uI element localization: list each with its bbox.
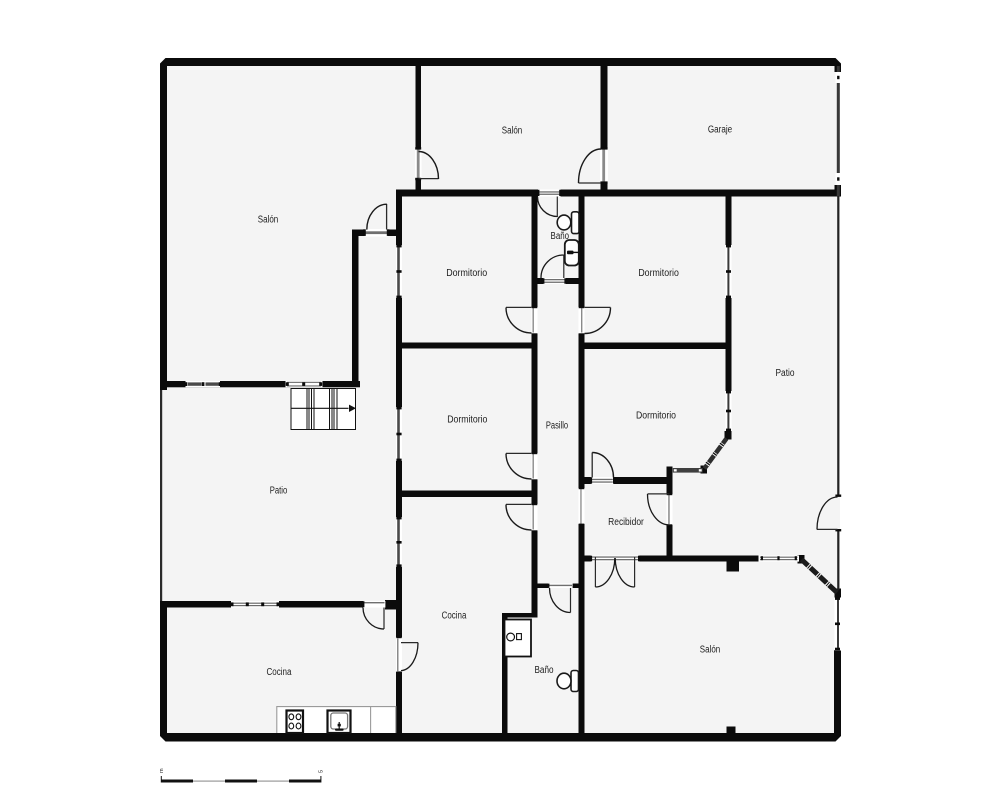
svg-text:Salón: Salón <box>502 126 522 137</box>
svg-text:Dormitorio: Dormitorio <box>446 268 487 279</box>
svg-text:m: m <box>159 768 165 773</box>
svg-text:Recibidor: Recibidor <box>608 517 644 528</box>
svg-text:Garaje: Garaje <box>708 125 733 136</box>
svg-text:Cocina: Cocina <box>267 667 292 678</box>
svg-text:5: 5 <box>319 770 325 773</box>
svg-text:Dormitorio: Dormitorio <box>447 415 488 426</box>
svg-text:Dormitorio: Dormitorio <box>638 268 679 279</box>
svg-text:Baño: Baño <box>535 665 554 676</box>
svg-text:Pasillo: Pasillo <box>546 421 569 432</box>
svg-text:Patio: Patio <box>776 368 795 379</box>
svg-text:Cocina: Cocina <box>442 611 467 622</box>
svg-text:Baño: Baño <box>551 231 570 242</box>
svg-text:Salón: Salón <box>258 215 279 226</box>
svg-text:Dormitorio: Dormitorio <box>636 411 676 422</box>
svg-text:Patio: Patio <box>270 486 288 497</box>
svg-text:Salón: Salón <box>700 645 720 656</box>
